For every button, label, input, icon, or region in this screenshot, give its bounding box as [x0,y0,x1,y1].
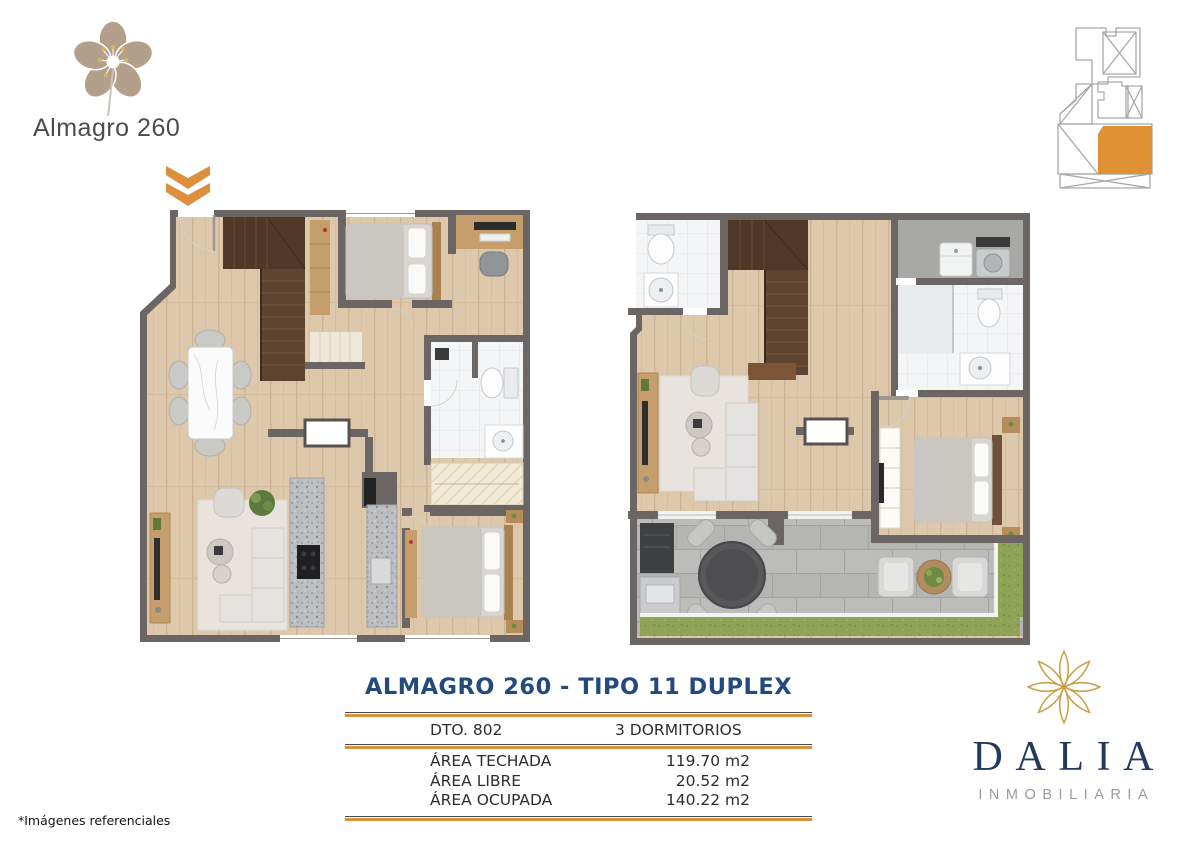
floor-plan-level-2 [628,213,1030,645]
highlighted-unit [1098,126,1152,174]
tv-sideboard-icon [638,373,658,493]
hall-steps [305,332,365,369]
bathroom [424,335,524,465]
kitchen-sink-icon [371,558,391,584]
area-rows: ÁREA TECHADA119.70 m2 ÁREA LIBRE20.52 m2… [345,749,812,816]
bed-icon [914,435,1002,525]
toilet-icon [481,368,518,398]
toilet-icon [978,289,1002,327]
divider [345,816,812,821]
blossom-logo-icon [70,18,156,118]
developer-tagline: INMOBILIARIA [943,787,1183,803]
duct-vent [305,420,349,446]
cooktop-icon [297,545,320,579]
unit-title: ALMAGRO 260 - TIPO 11 DUPLEX [345,674,812,700]
unit-details: ALMAGRO 260 - TIPO 11 DUPLEX DTO. 8023 D… [345,674,812,821]
area-row: ÁREA LIBRE20.52 m2 [345,772,812,792]
unit-number: DTO. 802 [430,721,615,739]
floor-plan-level-1 [140,210,530,642]
bedrooms-count: 3 DORMITORIOS [615,721,742,739]
sink-icon [485,425,523,458]
dalia-flower-icon [1021,644,1107,730]
sink-icon [960,353,1010,385]
armchair-icon [214,488,244,517]
double-chevron-down-icon [163,166,213,206]
brochure-page: Almagro 260 [0,0,1194,845]
plant-icon [249,490,275,516]
washer-icon [940,243,972,276]
smoke-detector-icon [323,228,327,232]
sink-icon [644,273,678,307]
tv-icon [879,463,884,503]
bed-icon [346,222,441,300]
shower-icon [898,285,953,353]
bed-icon [422,525,513,620]
developer-name: DALIA [943,733,1183,781]
plant-table-icon [917,560,951,594]
grill-icon [640,523,680,621]
grass-strip [998,543,1023,617]
armchair-icon [691,366,719,396]
living-room [638,366,758,501]
building-key-plan [1048,22,1166,194]
tv-sideboard-icon [150,513,170,623]
duct-vent [805,419,847,444]
fridge-icon [364,478,376,506]
grass-strip [640,617,1020,636]
laundry [891,213,1030,285]
shower-icon [435,348,449,360]
area-row: ÁREA OCUPADA140.22 m2 [345,791,812,811]
area-row: ÁREA TECHADA119.70 m2 [345,752,812,772]
toilet-icon [648,225,674,264]
unit-row: DTO. 8023 DORMITORIOS [345,717,812,744]
closet [424,463,530,512]
console-shelf [748,363,796,380]
bathroom-right [891,285,1030,397]
project-name: Almagro 260 [33,114,180,143]
footnote: *Imágenes referenciales [18,813,170,828]
mid-wall [796,419,854,444]
